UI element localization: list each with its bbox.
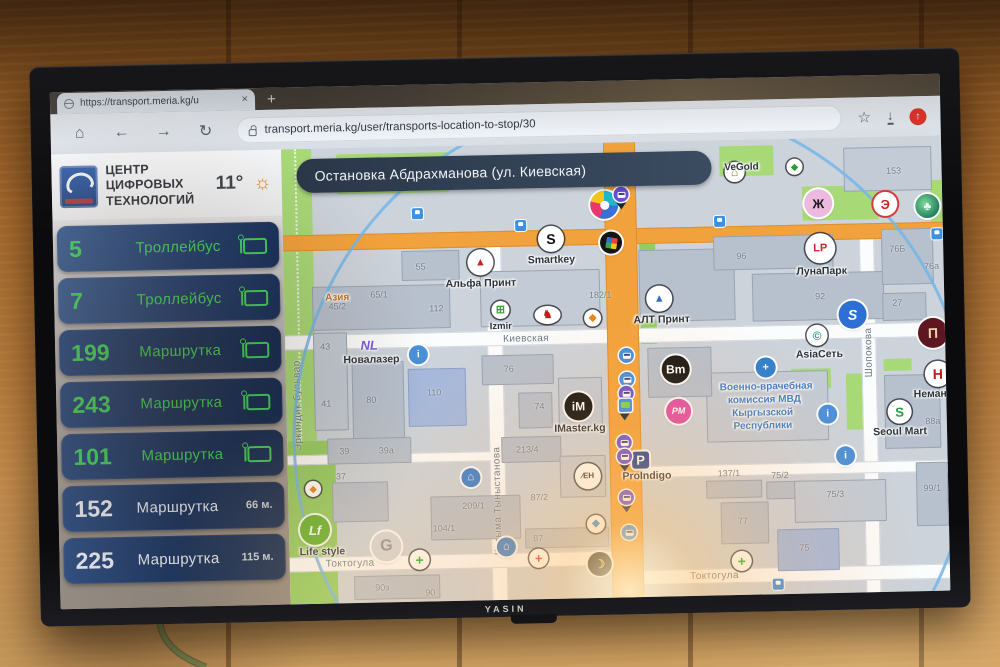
- route-card-243[interactable]: 243 Маршрутка: [60, 378, 283, 429]
- house-icon: ⌂: [503, 541, 510, 552]
- building-number: 110: [427, 387, 442, 397]
- poi-label: Life style: [300, 545, 346, 558]
- poi-label: Smartkey: [528, 253, 576, 266]
- org-title-line1: ЦЕНТР ЦИФРОВЫХ: [105, 161, 208, 194]
- poi-label: Izmir: [490, 321, 512, 332]
- vvk-text: Кыргызской: [732, 407, 793, 419]
- bus-icon: [241, 442, 271, 464]
- g-logo-icon: G: [380, 538, 393, 554]
- tv-ir-notch: [511, 614, 557, 624]
- sidebar-header: ЦЕНТР ЦИФРОВЫХ ТЕХНОЛОГИЙ 11° ☼: [51, 150, 282, 221]
- building: [313, 332, 349, 431]
- page-content: ЦЕНТР ЦИФРОВЫХ ТЕХНОЛОГИЙ 11° ☼ 5 Тролле…: [51, 136, 950, 610]
- update-badge-icon[interactable]: ↑: [909, 108, 926, 125]
- route-number: 101: [73, 442, 124, 470]
- map-pin-icon: [620, 464, 630, 476]
- building: [794, 479, 887, 523]
- building-number: 137/1: [718, 468, 741, 478]
- lion-icon: ♞: [542, 309, 552, 320]
- globe-favicon-icon: [64, 98, 74, 108]
- url-bar[interactable]: transport.meria.kg/user/transports-locat…: [236, 105, 841, 144]
- building-number: 77: [738, 516, 748, 526]
- route-type: Маршрутка: [124, 497, 230, 516]
- poi-label-vegold: VeGold: [724, 162, 759, 174]
- building-number: 74: [534, 401, 544, 411]
- download-icon[interactable]: ↓: [887, 109, 894, 125]
- neman-logo-icon: Н: [933, 367, 943, 381]
- lock-icon: [249, 129, 257, 136]
- bus-icon: [240, 390, 270, 412]
- poi-label: IMaster.kg: [554, 422, 606, 435]
- route-card-199[interactable]: 199 Маршрутка: [59, 326, 282, 377]
- browser-window: https://transport.meria.kg/u × + ⌂ ← → ↻…: [50, 74, 951, 610]
- poi-label: Неман: [914, 388, 947, 401]
- vvk-text: Военно-врачебная: [720, 380, 813, 393]
- sun-icon: ☼: [253, 171, 272, 194]
- home-icon[interactable]: ⌂: [64, 124, 94, 143]
- tab-close-icon[interactable]: ×: [241, 94, 248, 105]
- building-number: 80: [366, 395, 376, 405]
- route-number: 152: [74, 494, 125, 522]
- bm-logo-icon: Bm: [666, 363, 686, 375]
- poi-pillars-logo[interactable]: Π: [918, 318, 949, 349]
- org-title: ЦЕНТР ЦИФРОВЫХ ТЕХНОЛОГИЙ: [105, 161, 208, 210]
- building-number: 76а: [924, 261, 939, 271]
- smartkey-logo-icon: S: [546, 232, 556, 246]
- globe-icon: i: [417, 350, 420, 360]
- building-number: 87: [533, 533, 543, 543]
- map-pin-icon: [622, 505, 632, 517]
- street-toktogula: Токтогула: [326, 558, 375, 570]
- route-number: 5: [69, 234, 120, 262]
- vvk-text: комиссия МВД: [728, 394, 801, 407]
- route-list: 5 Троллейбус 7 Троллейбус 199 Маршрутка: [52, 216, 290, 585]
- bookmark-star-icon[interactable]: ☆: [857, 108, 871, 126]
- tab-title: https://transport.meria.kg/u: [80, 94, 236, 108]
- url-text: transport.meria.kg/user/transports-locat…: [264, 118, 535, 136]
- building-number: 75/3: [826, 489, 844, 499]
- poi-globe-marker[interactable]: i: [818, 404, 837, 423]
- org-title-line2: ТЕХНОЛОГИЙ: [106, 192, 208, 210]
- map-pin-icon: [616, 202, 626, 214]
- building-number: 39: [339, 446, 349, 456]
- building-number: 209/1: [462, 500, 485, 510]
- building: [882, 292, 927, 321]
- route-distance: 66 м.: [230, 499, 272, 512]
- road: [642, 460, 948, 478]
- poi-neman[interactable]: Н: [925, 361, 951, 388]
- route-type: Маршрутка: [122, 393, 240, 412]
- stop-board-icon[interactable]: [619, 399, 632, 412]
- medical-cross-icon: +: [535, 552, 543, 565]
- building-number: 55: [415, 262, 425, 272]
- route-type: Маршрутка: [123, 445, 241, 464]
- building-number: 27: [892, 298, 902, 308]
- pm-logo-icon: PM: [672, 407, 686, 416]
- building-number: 37: [336, 471, 346, 481]
- globe-icon: i: [826, 409, 829, 419]
- route-number: 7: [70, 286, 121, 314]
- crescent-icon: ☽: [594, 558, 605, 570]
- swan-logo-icon: S: [848, 308, 858, 322]
- new-tab-button[interactable]: +: [267, 92, 276, 107]
- shopping-cart-icon: ⊞: [496, 304, 505, 315]
- route-type: Троллейбус: [120, 289, 238, 308]
- poi-label: Новалазер: [343, 353, 399, 366]
- forward-icon[interactable]: →: [148, 123, 178, 142]
- diamond-icon: ◆: [791, 162, 798, 171]
- vvk-text: Республики: [734, 420, 793, 432]
- alfa-print-logo-icon: ▲: [475, 257, 486, 268]
- route-card-225[interactable]: 225 Маршрутка 115 м.: [63, 534, 286, 585]
- bus-stop-sign-icon[interactable]: [515, 220, 526, 231]
- building-number: 75/2: [771, 470, 789, 480]
- imaster-logo-icon: iM: [572, 400, 586, 412]
- poi-pm[interactable]: PM: [666, 399, 692, 425]
- poi-house-marker[interactable]: ⌂: [461, 468, 480, 487]
- street-kievskaya: Киевская: [503, 333, 549, 345]
- route-type: Маршрутка: [121, 341, 239, 360]
- building-number: 41: [321, 399, 331, 409]
- building-number: 92: [815, 291, 825, 301]
- poi-parking[interactable]: P: [632, 451, 649, 468]
- bus-stop-sign-icon[interactable]: [412, 208, 423, 219]
- route-distance: 115 м.: [231, 551, 273, 564]
- emerald-logo-icon: ♣: [923, 200, 931, 212]
- route-card-5[interactable]: 5 Троллейбус: [57, 222, 280, 273]
- building-number: 75: [799, 543, 809, 553]
- street-toktogula: Токтогула: [690, 570, 739, 582]
- building-number: 96: [736, 251, 746, 261]
- building-number: 76: [504, 364, 514, 374]
- route-number: 243: [72, 390, 123, 418]
- building-number: 90з: [375, 582, 389, 592]
- c-logo-icon: ©: [812, 329, 821, 341]
- poi-globe-marker[interactable]: i: [409, 345, 428, 364]
- pharmacy-cross-icon: +: [738, 554, 746, 568]
- poi-label-azia: Азия: [325, 292, 349, 304]
- building-number: 99/1: [923, 483, 941, 493]
- trolleybus-icon: [238, 286, 268, 308]
- building: [881, 228, 934, 285]
- pillars-logo-icon: Π: [928, 326, 938, 340]
- parking-icon: P: [636, 453, 645, 466]
- butterfly-icon: Ж: [812, 197, 824, 210]
- building-number: 65/1: [370, 289, 388, 299]
- temperature: 11°: [215, 172, 243, 195]
- route-card-101[interactable]: 101 Маршрутка: [61, 430, 284, 481]
- poi-novalaser-logo[interactable]: NL: [360, 338, 378, 353]
- poi-asiaset[interactable]: ©: [806, 325, 827, 346]
- aen-logo-icon: ∕ЕН: [582, 472, 595, 480]
- poi-crescent[interactable]: ☽: [588, 552, 612, 576]
- building-number: 76Б: [889, 243, 905, 253]
- route-number: 199: [71, 338, 122, 366]
- building-number: 213/4: [516, 444, 539, 454]
- alt-print-logo-icon: ▲: [654, 293, 665, 304]
- route-card-152[interactable]: 152 Маршрутка 66 м.: [62, 482, 285, 533]
- park: [884, 358, 912, 371]
- building: [706, 480, 762, 499]
- poi-label: АЛТ Принт: [633, 313, 690, 326]
- poi-label: Seoul Mart: [873, 425, 927, 438]
- building-number: 43: [320, 342, 330, 352]
- route-card-7[interactable]: 7 Троллейбус: [58, 274, 281, 325]
- reload-icon[interactable]: ↻: [190, 121, 220, 142]
- bus-stop-sign-icon[interactable]: [931, 228, 942, 239]
- building-number: 112: [429, 303, 444, 313]
- back-icon[interactable]: ←: [106, 124, 136, 143]
- e-logo-icon: Э: [881, 197, 891, 210]
- poi-diamond[interactable]: ◆: [786, 159, 802, 175]
- photo-background: https://transport.meria.kg/u × + ⌂ ← → ↻…: [0, 0, 1000, 667]
- diamond-icon: ◆: [589, 313, 597, 323]
- route-type: Троллейбус: [119, 237, 237, 256]
- building: [401, 250, 460, 281]
- map-pin-icon: [620, 413, 630, 425]
- cct-logo: [59, 165, 98, 208]
- poi-label: AsiaСеть: [796, 348, 843, 361]
- globe-icon: i: [844, 451, 847, 461]
- stop-banner-text: Остановка Абдрахманова (ул. Киевская): [314, 162, 586, 184]
- poi-e-logo[interactable]: Э: [873, 192, 897, 216]
- poi-label: Альфа Принт: [445, 277, 516, 290]
- seoul-mart-logo-icon: S: [895, 405, 904, 418]
- life-style-logo-icon: Lf: [309, 523, 322, 536]
- sidebar: ЦЕНТР ЦИФРОВЫХ ТЕХНОЛОГИЙ 11° ☼ 5 Тролле…: [51, 150, 290, 610]
- stop-banner: Остановка Абдрахманова (ул. Киевская): [296, 151, 712, 194]
- building-number: 153: [886, 166, 901, 176]
- street-shopokova: Шопокова: [862, 287, 875, 377]
- diamond-icon: ◆: [310, 484, 317, 493]
- poi-smartkey[interactable]: S: [538, 226, 565, 253]
- building: [332, 481, 389, 522]
- vvk-icon: +: [762, 362, 769, 373]
- route-number: 225: [75, 546, 126, 574]
- building-number: 39а: [379, 445, 394, 455]
- lunapark-logo-icon: LP: [813, 243, 827, 254]
- tv-frame: https://transport.meria.kg/u × + ⌂ ← → ↻…: [29, 47, 971, 626]
- building: [351, 361, 405, 440]
- map[interactable]: 55 65/1 45/2 112 43 80 41 110 39 39а 37 …: [281, 136, 950, 605]
- building-number: 182/1: [589, 290, 612, 300]
- building-number: 90: [425, 587, 435, 597]
- diamond-icon: ◆: [592, 519, 600, 529]
- building: [916, 462, 949, 527]
- poi-label: ЛунаПарк: [796, 265, 847, 278]
- building-number: 104/1: [433, 523, 456, 533]
- building-number: 87/2: [530, 492, 548, 502]
- colored-squares-icon: [605, 236, 618, 249]
- house-icon: ⌂: [467, 472, 474, 483]
- pharmacy-cross-icon: +: [415, 553, 423, 567]
- bus-icon: [239, 338, 269, 360]
- bus-stop-sign-icon[interactable]: [714, 216, 725, 227]
- route-type: Маршрутка: [125, 549, 231, 568]
- bus-stop-sign-icon[interactable]: [773, 579, 784, 590]
- trolleybus-icon: [237, 234, 267, 256]
- building-number: 88а: [925, 416, 940, 426]
